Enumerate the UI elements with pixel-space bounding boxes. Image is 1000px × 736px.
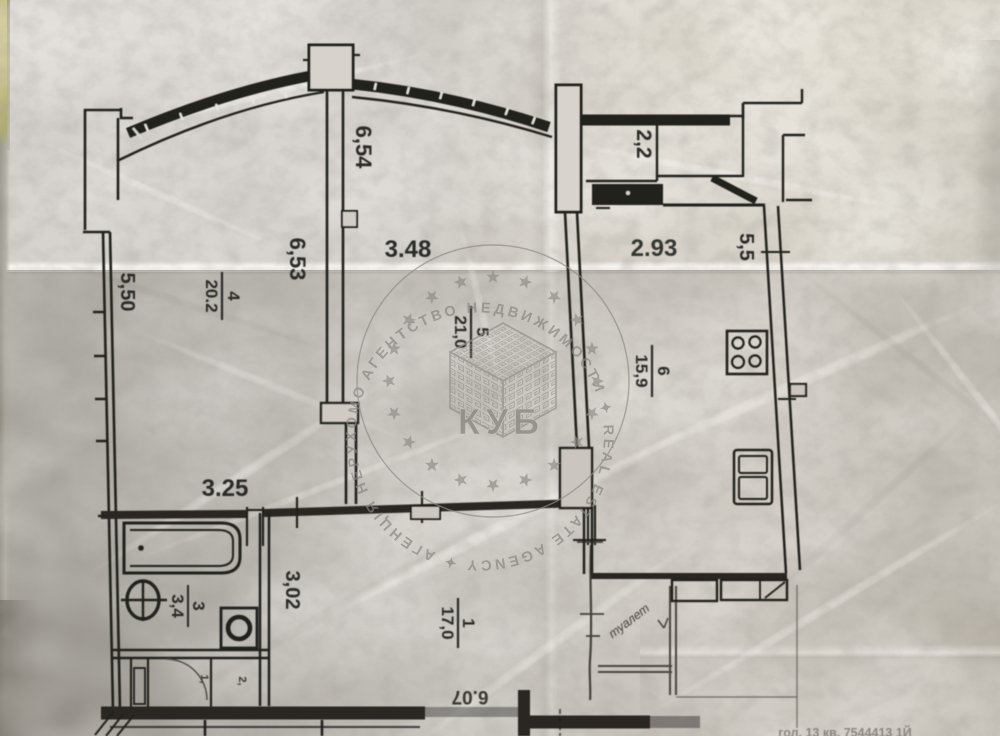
svg-text:6: 6 (654, 366, 673, 375)
svg-text:6,54: 6,54 (351, 126, 376, 170)
svg-text:5,50: 5,50 (116, 273, 138, 312)
svg-text:3,4: 3,4 (168, 594, 187, 618)
svg-text:2,2: 2,2 (632, 129, 655, 158)
svg-text:1: 1 (459, 618, 478, 627)
svg-text:гол. 13 кв. 7544413 1Й: гол. 13 кв. 7544413 1Й (778, 725, 912, 736)
svg-text:4: 4 (224, 291, 243, 301)
svg-text:2.93: 2.93 (631, 235, 678, 262)
svg-text:3: 3 (189, 601, 208, 610)
svg-text:3.25: 3.25 (202, 475, 249, 502)
svg-text:6,53: 6,53 (285, 238, 310, 281)
svg-text:3.48: 3.48 (385, 236, 432, 263)
svg-text:3,02: 3,02 (281, 571, 303, 610)
svg-text:1,: 1, (198, 674, 210, 683)
svg-text:17,0: 17,0 (438, 606, 457, 639)
svg-text:2,: 2, (236, 676, 248, 685)
svg-text:15,9: 15,9 (632, 354, 651, 387)
svg-text:КУБ: КУБ (458, 401, 544, 442)
svg-text:5,5: 5,5 (735, 233, 757, 261)
svg-text:20.2: 20.2 (202, 279, 221, 312)
svg-text:6.07: 6.07 (452, 686, 489, 707)
